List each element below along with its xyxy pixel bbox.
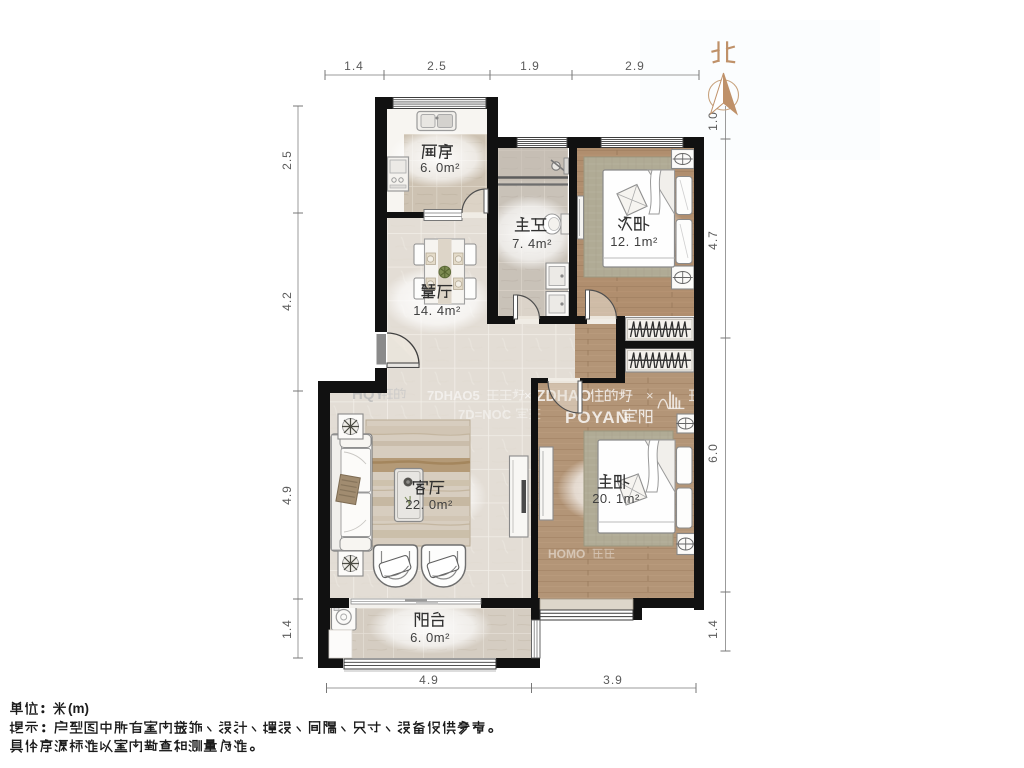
svg-text:2.5: 2.5 <box>280 150 294 170</box>
svg-text:4.2: 4.2 <box>280 291 294 311</box>
svg-text:20. 1m²: 20. 1m² <box>592 491 640 506</box>
svg-text:1.4: 1.4 <box>344 59 364 73</box>
svg-text:4.9: 4.9 <box>419 673 439 687</box>
svg-text:7DHAO5: 7DHAO5 <box>427 388 480 403</box>
svg-text:2.9: 2.9 <box>625 59 645 73</box>
svg-text:12. 1m²: 12. 1m² <box>610 234 658 249</box>
svg-text:22. 0m²: 22. 0m² <box>405 497 453 512</box>
svg-text:4.9: 4.9 <box>280 485 294 505</box>
svg-text:HOMO: HOMO <box>548 547 585 561</box>
svg-text:14. 4m²: 14. 4m² <box>413 303 461 318</box>
svg-text:2.5: 2.5 <box>427 59 447 73</box>
svg-text:1.0: 1.0 <box>706 111 720 131</box>
svg-text:6. 0m²: 6. 0m² <box>410 630 450 645</box>
svg-text:7D=NOC: 7D=NOC <box>458 407 512 422</box>
svg-text:1.4: 1.4 <box>280 619 294 639</box>
svg-text:7. 4m²: 7. 4m² <box>512 236 552 251</box>
svg-text:6. 0m²: 6. 0m² <box>420 160 460 175</box>
svg-text:6.0: 6.0 <box>706 443 720 463</box>
svg-text:3.9: 3.9 <box>603 673 623 687</box>
svg-text:1.9: 1.9 <box>520 59 540 73</box>
svg-text:(m): (m) <box>68 701 89 716</box>
svg-text:1.4: 1.4 <box>706 619 720 639</box>
svg-text:×: × <box>646 388 654 403</box>
svg-text:4.7: 4.7 <box>706 230 720 250</box>
svg-text:×: × <box>524 388 532 403</box>
